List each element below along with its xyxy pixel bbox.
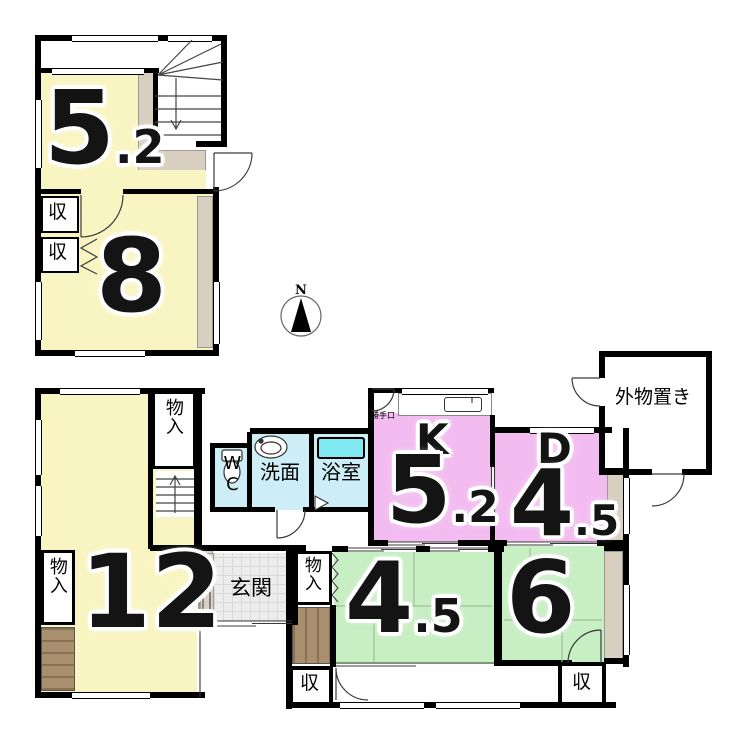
wall <box>196 141 227 147</box>
wall <box>502 660 572 666</box>
closet-4-5-label: 物入 <box>301 556 319 592</box>
sliding-door <box>216 621 292 626</box>
sliding-door <box>430 548 488 551</box>
kitchen-sink <box>444 397 482 412</box>
bathroom-label: 浴室 <box>321 462 361 483</box>
window <box>60 388 140 395</box>
wall <box>286 545 292 709</box>
window <box>72 692 150 699</box>
stairs-2f <box>155 40 223 143</box>
storage-se-label: 収 <box>572 673 591 693</box>
wall <box>247 432 252 512</box>
compass <box>281 296 321 336</box>
closet-hall-label: 物入 <box>163 398 182 436</box>
wall <box>309 432 314 512</box>
window <box>168 35 212 42</box>
wc-label: WC <box>222 453 241 495</box>
window <box>75 350 145 357</box>
room-4-5-dec: .5 <box>413 589 462 643</box>
door-arc <box>572 378 600 406</box>
wall <box>604 658 624 664</box>
kitchen-size-dec: .2 <box>451 482 498 533</box>
closet-2f-bottom-label: 収 <box>48 243 67 263</box>
wall <box>330 605 336 667</box>
stairs-1f <box>156 471 194 517</box>
entrance-label: 玄関 <box>230 577 272 599</box>
door-arc <box>652 474 684 506</box>
window <box>340 702 424 709</box>
door-arc <box>277 510 305 538</box>
window <box>35 282 42 340</box>
room-6-size: 6 <box>506 552 576 644</box>
window <box>623 585 630 655</box>
deck-west <box>41 627 75 691</box>
room-5-2-size: 5.2 <box>44 82 164 176</box>
outdoor-storage-label: 外物置き <box>615 388 691 408</box>
wall <box>210 443 215 512</box>
balcony-2f <box>197 196 213 348</box>
deck-4-5 <box>292 607 332 664</box>
window <box>35 100 42 168</box>
window <box>35 486 42 536</box>
bathtub <box>317 437 365 459</box>
dining-size-dec: .5 <box>574 496 619 545</box>
washroom-label: 洗面 <box>260 462 300 483</box>
wall <box>416 546 430 552</box>
storage-sw-label: 収 <box>300 674 319 694</box>
room-5-2-int: 5 <box>44 69 115 188</box>
kitchen-size: 5.2 <box>386 448 499 534</box>
wall <box>210 443 252 448</box>
room-4-5-size: 4.5 <box>345 554 463 644</box>
door-opening <box>599 378 605 406</box>
door-arc <box>336 668 368 700</box>
window <box>72 35 158 42</box>
room-5-2-dec: .2 <box>115 120 164 174</box>
window <box>213 282 220 344</box>
wall <box>123 189 215 194</box>
north-arrow-icon <box>291 298 311 332</box>
closet-west-label: 物入 <box>47 557 66 595</box>
door-opening <box>652 469 682 475</box>
window <box>35 420 42 475</box>
room-12-size: 12 <box>80 546 222 640</box>
wall <box>35 189 81 194</box>
wall <box>494 546 502 664</box>
room-8-size: 8 <box>96 230 167 324</box>
outdoor-storage-room <box>599 351 712 475</box>
wall <box>303 507 372 512</box>
back-door-label: 勝手口 <box>371 412 395 420</box>
corridor-east-lower <box>604 551 623 662</box>
door-arc <box>214 153 252 191</box>
window <box>436 702 520 709</box>
dining-size: 4.5 <box>510 462 619 547</box>
wall <box>210 507 275 512</box>
window <box>402 388 488 395</box>
kitchen-size-int: 5 <box>386 436 451 545</box>
closet-2f-top-label: 収 <box>48 203 67 223</box>
wall <box>194 388 202 549</box>
wall <box>221 35 227 147</box>
floor-plan: N 5.2 8 収 収 12 物入 物入 WC 洗面 浴室 勝手口 K 5.2 … <box>0 0 740 744</box>
compass-north-label: N <box>295 284 307 298</box>
room-4-5-int: 4 <box>345 542 413 656</box>
wall <box>148 391 153 549</box>
window <box>623 478 630 534</box>
